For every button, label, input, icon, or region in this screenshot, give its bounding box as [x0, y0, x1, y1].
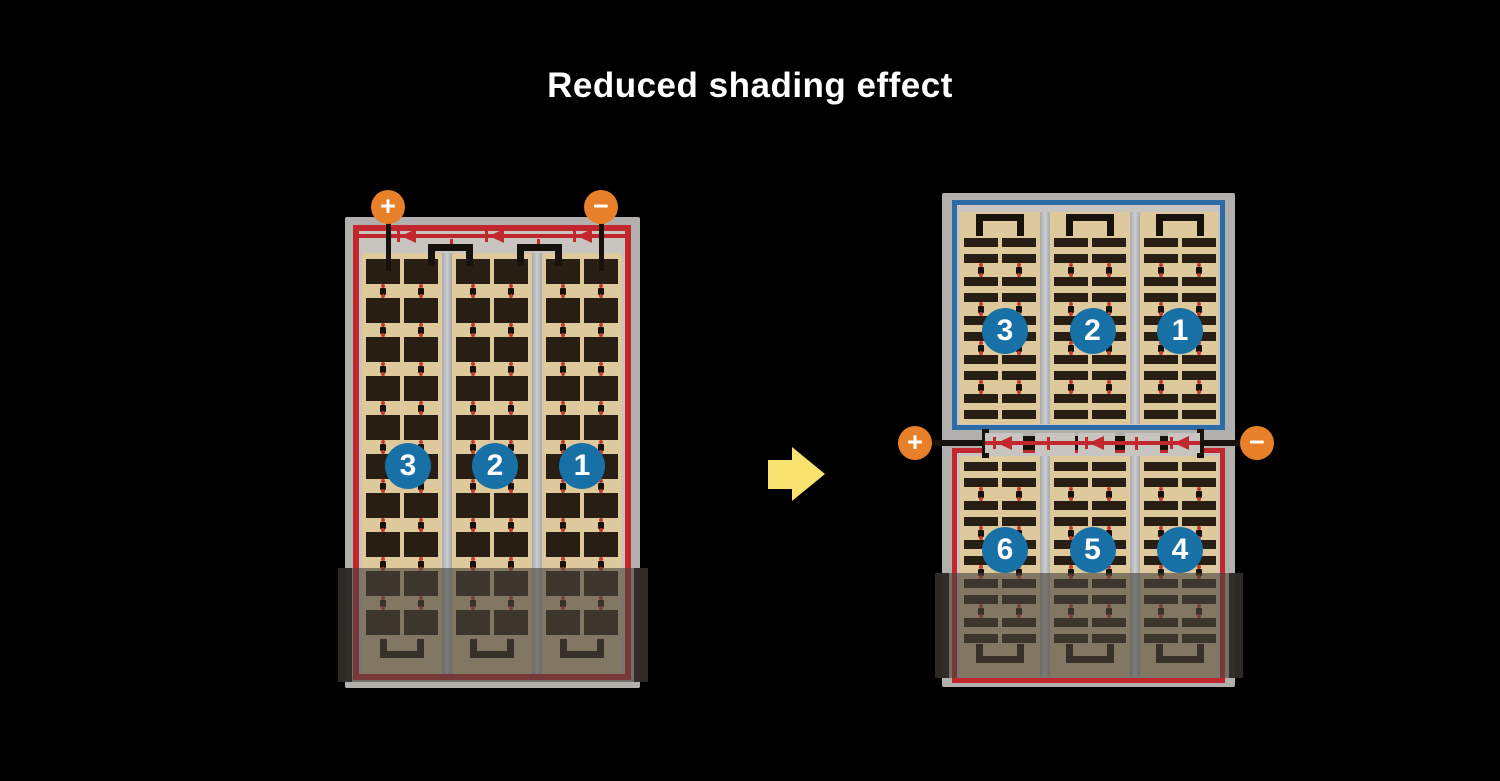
solar-cell [456, 532, 490, 557]
cell-connector [978, 526, 985, 540]
solder-dot [979, 390, 983, 394]
minus-terminal-icon: − [584, 190, 618, 224]
solar-cell [584, 376, 618, 401]
string-number-badge: 1 [559, 443, 605, 489]
string-number-badge: 2 [1070, 308, 1116, 354]
cell-connector [1196, 380, 1203, 394]
solder-dot [471, 294, 475, 298]
cell-connector [598, 284, 605, 298]
solder-dot [561, 294, 565, 298]
half-cut-cell [1144, 478, 1178, 487]
solder-dot [599, 489, 603, 493]
solder-dot [471, 333, 475, 337]
flow-arrow-icon [768, 447, 825, 502]
half-cut-cell [1092, 478, 1126, 487]
minus-sign: − [593, 193, 609, 220]
solar-cell [546, 259, 580, 284]
solder-dot [561, 411, 565, 415]
plus-terminal-icon: + [898, 426, 932, 460]
solder-dot [561, 333, 565, 337]
solar-cell [494, 337, 528, 362]
cell-connector [380, 362, 387, 376]
solder-dot [381, 528, 385, 532]
string-number-badge: 6 [982, 527, 1028, 573]
solder-dot [471, 528, 475, 532]
cell-connector [508, 518, 515, 532]
cell-connector [470, 362, 477, 376]
half-cut-cell [1092, 371, 1126, 380]
half-cut-cell [964, 410, 998, 419]
solar-cell [366, 493, 400, 518]
half-cut-cell [1144, 394, 1178, 403]
solder-dot [1017, 497, 1021, 501]
solder-dot [1107, 351, 1111, 355]
cell-connector [1016, 263, 1023, 277]
half-cut-cell [1054, 394, 1088, 403]
half-cut-cell [1144, 238, 1178, 247]
cell-connector [380, 479, 387, 493]
cell-connector [470, 518, 477, 532]
solder-dot [381, 411, 385, 415]
cell-connector [560, 362, 567, 376]
solder-dot [599, 294, 603, 298]
solar-cell [584, 493, 618, 518]
cell-connector [560, 323, 567, 337]
solder-dot [599, 333, 603, 337]
solder-dot [509, 528, 513, 532]
half-cut-cell [1002, 355, 1036, 364]
solder-dot [1197, 351, 1201, 355]
cell-connector [1068, 487, 1075, 501]
half-cut-cell [1054, 462, 1088, 471]
half-cut-cell [1092, 277, 1126, 286]
cell-connector [470, 323, 477, 337]
solder-dot [599, 411, 603, 415]
solder-dot [419, 411, 423, 415]
solar-cell [494, 415, 528, 440]
cell-connector [380, 284, 387, 298]
solder-dot [1159, 273, 1163, 277]
cell-connector [1068, 380, 1075, 394]
solder-dot [979, 273, 983, 277]
solder-dot [599, 372, 603, 376]
half-cut-cell [1182, 517, 1216, 526]
solder-dot [561, 489, 565, 493]
half-cut-cell [1054, 293, 1088, 302]
cell-connector [1068, 263, 1075, 277]
solar-cell [404, 298, 438, 323]
solder-dot [1069, 273, 1073, 277]
cell-connector [470, 401, 477, 415]
cell-connector [1158, 263, 1165, 277]
solder-dot [419, 489, 423, 493]
half-cut-cell [1054, 277, 1088, 286]
solder-dot [1069, 312, 1073, 316]
solder-dot [561, 372, 565, 376]
half-cut-cell [1182, 478, 1216, 487]
cell-connector [508, 284, 515, 298]
solar-cell [546, 493, 580, 518]
half-cut-cell [1092, 517, 1126, 526]
full-cell-panel: + − 321 [345, 217, 640, 688]
cell-connector [1016, 380, 1023, 394]
plus-terminal-icon: + [371, 190, 405, 224]
cell-connector [418, 401, 425, 415]
half-cut-cell [1182, 355, 1216, 364]
solar-cell [404, 532, 438, 557]
half-cut-cell [964, 254, 998, 263]
plus-sign: + [907, 429, 923, 456]
solder-dot [509, 333, 513, 337]
arrow-head [792, 447, 825, 501]
solar-cell [456, 415, 490, 440]
half-cut-cell [1182, 293, 1216, 302]
cell-connector [380, 440, 387, 454]
cell-connector [978, 487, 985, 501]
cell-bridge-wire [976, 214, 1024, 221]
half-cut-cell [1092, 355, 1126, 364]
half-cut-cell [1092, 501, 1126, 510]
half-cut-cell [1002, 238, 1036, 247]
cell-connector [418, 518, 425, 532]
cell-connector [1016, 487, 1023, 501]
plus-sign: + [380, 193, 396, 220]
solar-cell [366, 337, 400, 362]
solar-cell [366, 532, 400, 557]
half-cut-cell [1144, 462, 1178, 471]
half-cut-cell [1144, 410, 1178, 419]
string-number-badge: 1 [1157, 308, 1203, 354]
half-cut-cell [1054, 371, 1088, 380]
half-cut-cell [1144, 501, 1178, 510]
half-cut-cell [964, 277, 998, 286]
cell-connector [978, 380, 985, 394]
solder-dot [1107, 273, 1111, 277]
solder-dot [1159, 390, 1163, 394]
shade-edge [634, 568, 648, 682]
half-cut-cell [964, 238, 998, 247]
solder-dot [1197, 497, 1201, 501]
cell-bridge-wire [976, 221, 983, 236]
cell-connector [380, 323, 387, 337]
solar-cell [584, 259, 618, 284]
solar-cell [546, 337, 580, 362]
cell-connector [380, 401, 387, 415]
solar-cell [546, 298, 580, 323]
cell-connector [1106, 487, 1113, 501]
solder-dot [509, 489, 513, 493]
solder-dot [1017, 273, 1021, 277]
half-cut-cell [1002, 517, 1036, 526]
solar-cell [366, 415, 400, 440]
half-cut-cell [964, 355, 998, 364]
cell-connector [1196, 302, 1203, 316]
solder-dot [1017, 390, 1021, 394]
cell-connector [418, 362, 425, 376]
cell-connector [380, 518, 387, 532]
solder-dot [381, 333, 385, 337]
solder-dot [1069, 390, 1073, 394]
cell-connector [508, 401, 515, 415]
solder-dot [419, 333, 423, 337]
half-cut-cell [1182, 371, 1216, 380]
solar-cell [494, 493, 528, 518]
solar-cell [456, 259, 490, 284]
half-cut-cell [1092, 254, 1126, 263]
half-cut-cell [964, 517, 998, 526]
solar-cell [456, 376, 490, 401]
busbar [1040, 212, 1050, 424]
cell-connector [1068, 302, 1075, 316]
half-cut-cell [1144, 254, 1178, 263]
solar-cell [404, 493, 438, 518]
half-cut-cell [1054, 355, 1088, 364]
solar-cell [546, 376, 580, 401]
solder-dot [1069, 351, 1073, 355]
cell-connector [470, 284, 477, 298]
half-cut-cell [964, 501, 998, 510]
string-number-badge: 4 [1157, 527, 1203, 573]
solar-cell [404, 259, 438, 284]
solar-cell [404, 376, 438, 401]
cell-bridge-wire [1156, 214, 1204, 221]
solder-dot [979, 351, 983, 355]
solar-cell [584, 298, 618, 323]
solar-cell [494, 259, 528, 284]
solder-dot [381, 489, 385, 493]
cell-connector [598, 362, 605, 376]
half-cut-cell [1092, 238, 1126, 247]
half-cut-cell [1054, 254, 1088, 263]
solder-dot [509, 294, 513, 298]
half-cut-cell [964, 371, 998, 380]
solder-dot [509, 411, 513, 415]
solder-dot [419, 294, 423, 298]
half-cut-cell [1144, 293, 1178, 302]
half-cut-cell [1182, 254, 1216, 263]
half-cut-cell [1092, 410, 1126, 419]
half-cut-cell [1054, 238, 1088, 247]
string-number-badge: 2 [472, 443, 518, 489]
cell-bridge-wire [1107, 221, 1114, 236]
solder-dot [1107, 497, 1111, 501]
cell-connector [598, 401, 605, 415]
half-cut-cell [1144, 371, 1178, 380]
solder-dot [561, 528, 565, 532]
solder-dot [381, 372, 385, 376]
cell-bridge-wire [1017, 221, 1024, 236]
cell-connector [1196, 487, 1203, 501]
half-cut-cell [1092, 462, 1126, 471]
solar-cell [494, 376, 528, 401]
half-cut-cell [1002, 293, 1036, 302]
cell-connector [1158, 380, 1165, 394]
solder-dot [979, 312, 983, 316]
half-cut-cell [1054, 517, 1088, 526]
half-cut-cell [1002, 410, 1036, 419]
solar-cell [366, 376, 400, 401]
cell-connector [418, 323, 425, 337]
solder-dot [471, 489, 475, 493]
minus-terminal-icon: − [1240, 426, 1274, 460]
solar-cell [366, 259, 400, 284]
solder-dot [419, 528, 423, 532]
cell-bridge-wire [1066, 214, 1114, 221]
solar-cell [366, 298, 400, 323]
string-number-badge: 5 [1070, 527, 1116, 573]
solder-dot [1069, 497, 1073, 501]
half-cut-cell [1002, 371, 1036, 380]
cell-bridge-wire [1197, 221, 1204, 236]
busbar [1130, 212, 1140, 424]
half-cut-cell [1002, 254, 1036, 263]
solar-cell [494, 298, 528, 323]
arrow-body [768, 460, 794, 489]
cell-connector [598, 518, 605, 532]
half-cut-cell [1092, 293, 1126, 302]
string-number-badge: 3 [385, 443, 431, 489]
solar-cell [456, 493, 490, 518]
diagram-title: Reduced shading effect [0, 66, 1500, 106]
shade-overlay [338, 568, 648, 682]
solder-dot [419, 372, 423, 376]
half-cut-cell [1182, 410, 1216, 419]
half-cut-cell [1002, 478, 1036, 487]
half-cut-cell [1182, 462, 1216, 471]
cell-connector [1106, 263, 1113, 277]
solder-dot [381, 450, 385, 454]
cell-connector [560, 518, 567, 532]
cell-connector [560, 284, 567, 298]
half-cut-cell [1182, 277, 1216, 286]
solder-dot [979, 497, 983, 501]
half-cut-panel-assembly: + − 321654 [942, 193, 1235, 687]
cell-connector [598, 323, 605, 337]
half-cut-cell [1182, 238, 1216, 247]
solar-cell [494, 532, 528, 557]
half-cut-cell [1092, 394, 1126, 403]
half-cut-cell [1054, 410, 1088, 419]
half-cut-cell [964, 478, 998, 487]
half-cut-cell [1002, 394, 1036, 403]
solar-cell [584, 337, 618, 362]
cell-connector [508, 323, 515, 337]
cell-connector [978, 263, 985, 277]
half-cut-cell [1002, 277, 1036, 286]
cell-connector [470, 479, 477, 493]
shade-edge [338, 568, 352, 682]
cell-bridge-wire [1156, 221, 1163, 236]
solar-cell [546, 415, 580, 440]
solder-dot [471, 411, 475, 415]
solder-dot [471, 372, 475, 376]
solder-dot [1159, 497, 1163, 501]
half-cut-cell [1144, 355, 1178, 364]
solder-dot [381, 294, 385, 298]
shade-edge [1229, 573, 1243, 678]
solder-dot [1197, 273, 1201, 277]
cell-bridge-wire [1066, 221, 1073, 236]
half-cut-cell [1054, 478, 1088, 487]
cell-connector [1106, 380, 1113, 394]
diagram: Reduced shading effect + − 321 + [0, 0, 1500, 781]
half-cut-cell [964, 462, 998, 471]
minus-sign: − [1249, 429, 1265, 456]
cell-connector [418, 284, 425, 298]
half-cut-cell [964, 394, 998, 403]
solar-cell [584, 532, 618, 557]
solder-dot [1197, 390, 1201, 394]
solder-dot [1159, 351, 1163, 355]
solar-cell [456, 298, 490, 323]
half-cut-cell [1002, 462, 1036, 471]
cell-connector [1158, 487, 1165, 501]
cell-connector [978, 302, 985, 316]
solar-cell [546, 532, 580, 557]
solar-cell [456, 337, 490, 362]
string-number-badge: 3 [982, 308, 1028, 354]
solar-cell [404, 415, 438, 440]
cell-connector [508, 362, 515, 376]
solder-dot [1017, 351, 1021, 355]
half-cut-cell [1182, 394, 1216, 403]
cell-connector [560, 401, 567, 415]
shade-edge [935, 573, 949, 678]
solder-dot [1107, 390, 1111, 394]
solar-cell [404, 337, 438, 362]
half-cut-cell [1182, 501, 1216, 510]
cell-connector [1196, 263, 1203, 277]
half-cut-cell [1002, 501, 1036, 510]
shade-overlay [935, 573, 1243, 678]
solar-cell [584, 415, 618, 440]
solder-dot [509, 372, 513, 376]
half-cut-cell [964, 293, 998, 302]
half-cut-cell [1144, 517, 1178, 526]
cell-connector [978, 341, 985, 355]
half-cut-cell [1144, 277, 1178, 286]
solder-dot [979, 536, 983, 540]
solder-dot [599, 528, 603, 532]
half-cut-cell [1054, 501, 1088, 510]
